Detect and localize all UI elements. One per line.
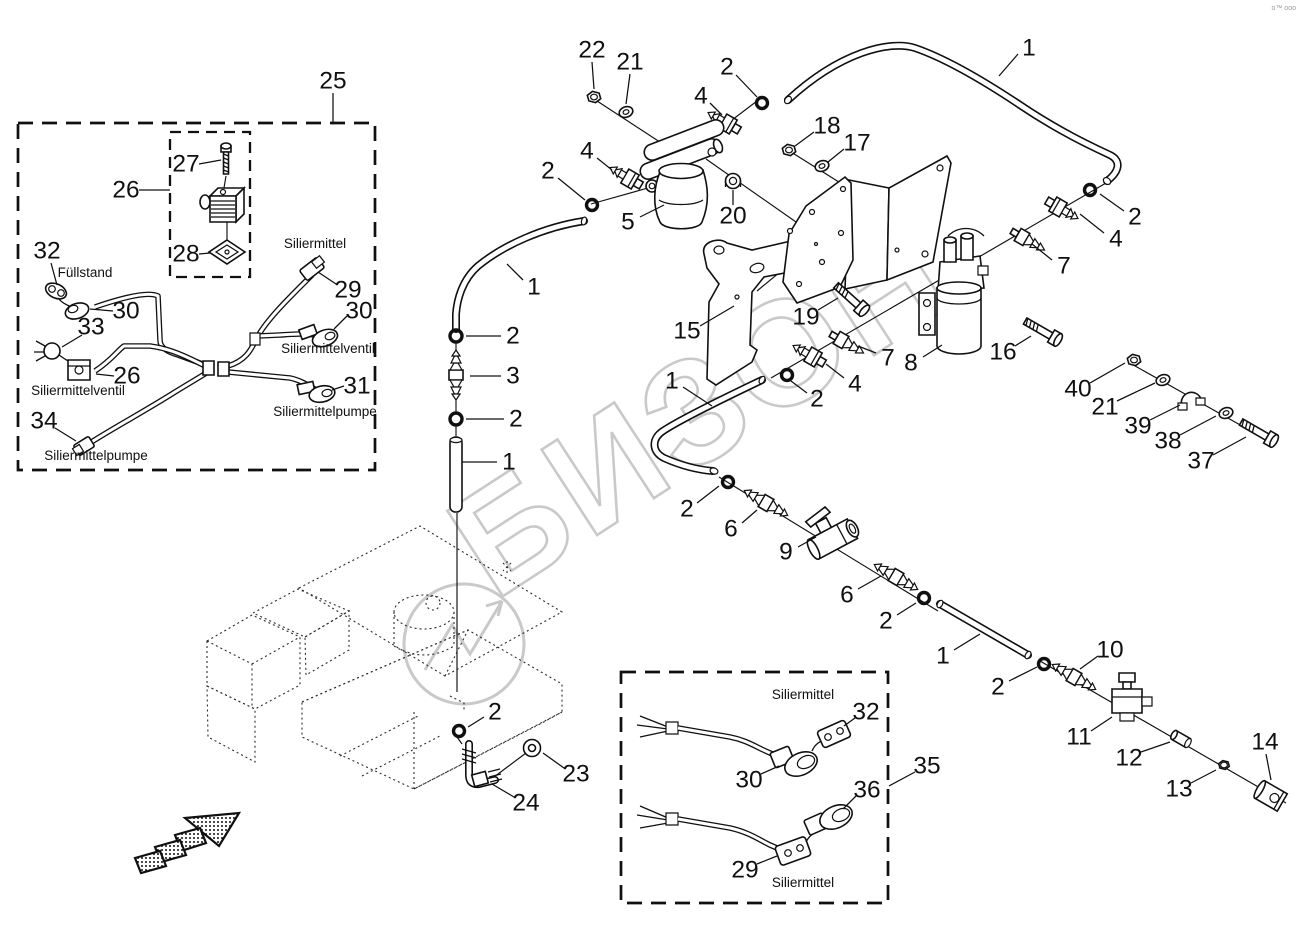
callout-39: 39: [1124, 413, 1151, 440]
callout-30: 30: [345, 298, 372, 325]
parts-diagram-page: БИЗОН 2527262832303326342930312221241181…: [0, 0, 1301, 929]
watermark-logo-icon: [404, 584, 524, 704]
leader-line: [468, 717, 484, 727]
callout-38: 38: [1154, 428, 1181, 455]
parts-layer: [34, 46, 1287, 866]
callout-6: 6: [840, 582, 854, 609]
callout-30: 30: [735, 767, 762, 794]
o-ring-drawing: [1039, 659, 1050, 670]
callout-29: 29: [731, 857, 758, 884]
leader-line: [1090, 363, 1125, 383]
leader-line: [199, 253, 210, 254]
tube-1-curved-drawing: [456, 216, 587, 329]
callout-32: 32: [33, 238, 60, 265]
callout-33: 33: [77, 314, 104, 341]
callout-7: 7: [881, 345, 895, 372]
axis-line: [591, 186, 655, 204]
direction-arrow-icon: [135, 813, 239, 873]
callout-4: 4: [848, 371, 862, 398]
callout-21: 21: [616, 49, 643, 76]
leader-line: [318, 272, 336, 284]
leader-line: [592, 62, 594, 89]
leader-line: [1009, 667, 1037, 681]
callout-15: 15: [673, 318, 700, 345]
callout-34: 34: [30, 408, 57, 435]
washer-drawing: [814, 159, 831, 174]
leader-line: [999, 54, 1018, 76]
callout-17: 17: [843, 130, 870, 157]
leader-line: [1180, 416, 1216, 435]
leader-line: [1213, 437, 1246, 455]
hose-coupler-drawing: [1049, 658, 1099, 695]
callout-8: 8: [904, 350, 918, 377]
callout-30: 30: [112, 298, 139, 325]
callout-11: 11: [1066, 724, 1091, 751]
hose-coupler-drawing: [449, 350, 463, 400]
callout-2: 2: [680, 496, 694, 523]
leader-line: [954, 634, 980, 650]
callout-4: 4: [694, 83, 708, 110]
callout-18: 18: [813, 113, 840, 140]
callout-36: 36: [853, 777, 880, 804]
callout-28: 28: [172, 241, 199, 268]
grommet-drawing: [726, 174, 741, 189]
leader-line: [761, 766, 779, 774]
callout-12: 12: [1115, 745, 1142, 772]
callout-25: 25: [319, 68, 346, 95]
o-ring-drawing: [587, 200, 598, 211]
hose-coupler-drawing: [741, 484, 791, 521]
leader-line: [1141, 742, 1170, 752]
leader-line: [1080, 656, 1098, 669]
leader-line: [1091, 717, 1112, 731]
leader-line: [507, 264, 523, 280]
callout-2: 2: [541, 158, 555, 185]
nozzle-14-drawing: [1252, 779, 1287, 811]
leader-line: [96, 374, 114, 376]
leader-line: [889, 772, 915, 786]
callout-13: 13: [1165, 776, 1192, 803]
nozzle-body-11-drawing: [1112, 673, 1152, 721]
callout-6: 6: [724, 516, 738, 543]
callout-2: 2: [506, 323, 520, 350]
leader-line: [897, 603, 916, 615]
callout-32: 32: [852, 699, 879, 726]
callout-2: 2: [991, 674, 1005, 701]
barb-fitting-drawing: [606, 161, 645, 193]
leader-line: [558, 178, 585, 200]
caption-text: Siliermittelpumpe: [44, 448, 148, 463]
washer-drawing: [1218, 406, 1235, 421]
callout-23: 23: [562, 761, 589, 788]
callout-9: 9: [779, 539, 793, 566]
callout-2: 2: [509, 406, 523, 433]
callout-16: 16: [989, 339, 1016, 366]
corner-mark: o™ ooo: [1271, 5, 1296, 12]
callout-24: 24: [512, 790, 539, 817]
washer-drawing: [618, 105, 635, 120]
callout-31: 31: [343, 373, 370, 400]
bolt-drawing: [1238, 416, 1281, 449]
caption-text: Siliermittelpumpe: [273, 404, 377, 419]
leader-line: [543, 753, 564, 768]
callout-1: 1: [936, 643, 950, 670]
leader-line: [1080, 214, 1104, 233]
callout-26: 26: [112, 177, 139, 204]
callout-1: 1: [665, 368, 679, 395]
callout-21: 21: [1091, 394, 1118, 421]
bolt-drawing: [1022, 315, 1065, 348]
callout-2: 2: [810, 386, 824, 413]
fitting-12-drawing: [1169, 729, 1192, 748]
callout-2: 2: [720, 54, 734, 81]
tube-1-straight-drawing: [450, 437, 462, 512]
leader-line: [795, 132, 814, 146]
callout-19: 19: [792, 304, 819, 331]
exploded-parts-drawing: БИЗОН 2527262832303326342930312221241181…: [0, 0, 1301, 929]
o-ring-drawing: [757, 98, 768, 109]
leader-line: [492, 784, 514, 797]
axis-line: [594, 99, 666, 146]
leader-line: [1117, 383, 1155, 401]
leader-line: [597, 158, 612, 170]
callout-37: 37: [1187, 448, 1214, 475]
caption-text: Siliermittel: [772, 875, 834, 890]
callout-5: 5: [621, 209, 635, 236]
nut-drawing: [587, 91, 600, 102]
leader-line: [1100, 194, 1124, 211]
leader-line: [1150, 405, 1180, 420]
leader-line: [199, 160, 221, 164]
callout-2: 2: [1128, 204, 1142, 231]
caption-text: Siliermittel: [772, 687, 834, 702]
leader-line: [828, 149, 844, 162]
leader-line: [1015, 336, 1031, 346]
leader-line: [1191, 770, 1216, 783]
callout-40: 40: [1064, 376, 1091, 403]
nut-drawing: [1219, 761, 1230, 770]
callout-20: 20: [719, 203, 746, 230]
leader-line: [742, 510, 757, 523]
callout-2: 2: [488, 699, 502, 726]
callout-35: 35: [913, 753, 940, 780]
screw-27-drawing: [221, 143, 231, 174]
elbow-24-drawing: [462, 744, 502, 787]
leader-line: [858, 576, 881, 589]
callout-27: 27: [172, 151, 199, 178]
o-ring-drawing: [450, 413, 462, 425]
leader-line: [736, 75, 757, 97]
gasket-28-drawing: [209, 240, 245, 264]
leader-line: [757, 856, 777, 864]
caption-text: Siliermittelventil: [31, 383, 125, 398]
barb-fitting-drawing: [1043, 194, 1082, 226]
callout-1: 1: [527, 274, 541, 301]
callout-3: 3: [506, 363, 520, 390]
callout-4: 4: [1109, 226, 1123, 253]
o-ring-drawing: [454, 726, 465, 737]
callout-4: 4: [580, 138, 594, 165]
caption-text: Siliermittel: [284, 236, 346, 251]
axis-line: [494, 753, 526, 777]
tube-1-short-drawing: [936, 599, 1032, 659]
leader-line: [1266, 754, 1271, 780]
clamp-39-drawing: [1178, 392, 1205, 410]
nut-drawing: [782, 144, 795, 155]
callout-22: 22: [578, 37, 605, 64]
leader-line: [332, 386, 344, 390]
callout-1: 1: [1022, 35, 1036, 62]
nut-drawing: [1127, 354, 1140, 365]
o-ring-drawing: [919, 593, 930, 604]
leader-line: [55, 428, 76, 441]
callout-1: 1: [502, 449, 516, 476]
callout-14: 14: [1251, 729, 1278, 756]
caption-text: Siliermittelventil: [281, 341, 375, 356]
o-ring-drawing: [1085, 185, 1096, 196]
solenoid-26-drawing: [200, 176, 244, 240]
leader-line: [51, 263, 57, 285]
caption-text: Füllstand: [58, 265, 113, 280]
leader-line: [626, 74, 630, 104]
callout-10: 10: [1096, 637, 1123, 664]
callout-7: 7: [1057, 253, 1071, 280]
callout-2: 2: [879, 608, 893, 635]
washer-drawing: [524, 740, 541, 757]
leader-line: [90, 309, 113, 311]
